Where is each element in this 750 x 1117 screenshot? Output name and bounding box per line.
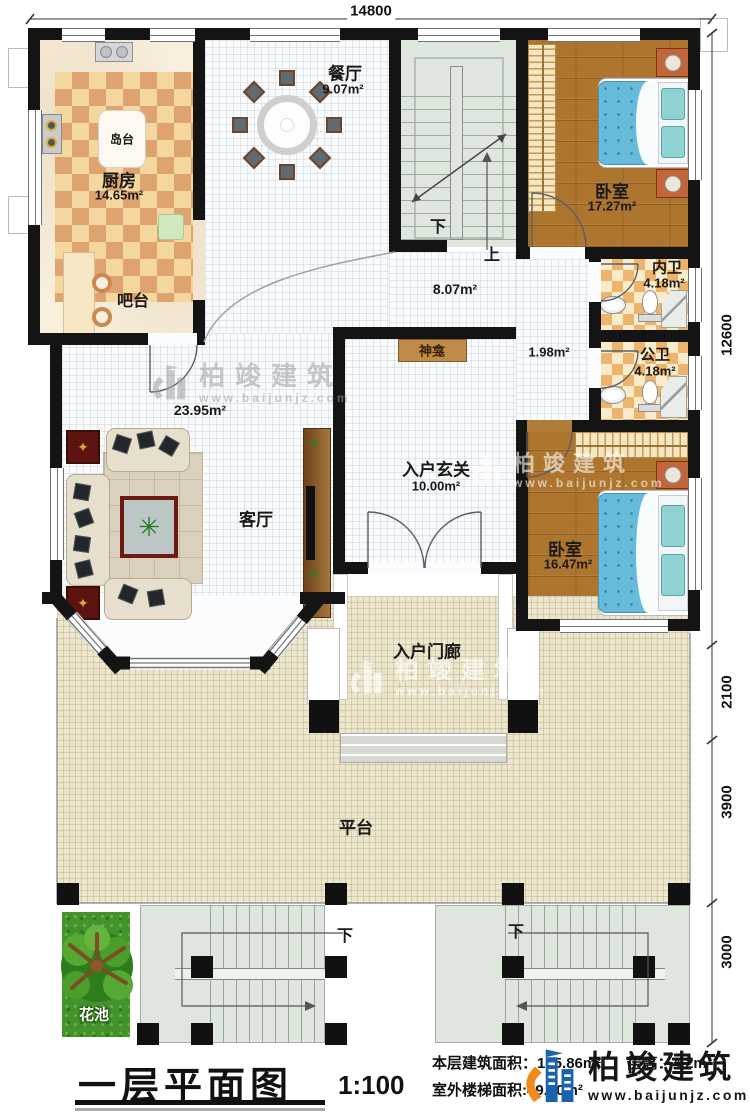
window-right-ensuite	[688, 268, 702, 322]
plan-scale: 1:100	[338, 1070, 405, 1101]
window-right-bedroom1	[688, 90, 702, 180]
dining-table-center	[280, 118, 294, 132]
flowerbed-label: 花池	[79, 1004, 109, 1025]
bedroom2-door-opening	[527, 420, 572, 432]
platform-column	[57, 883, 79, 905]
ensuite-sink	[600, 296, 626, 314]
window-top-1	[62, 28, 105, 42]
room-area-dining: 9.07m²	[322, 82, 363, 97]
window-top-dining	[250, 28, 340, 42]
cabinet-plant: ✳	[305, 566, 323, 584]
room-area-kitchen: 14.65m²	[95, 188, 143, 203]
brand-name: 柏竣建筑	[588, 1051, 749, 1083]
platform-column	[502, 883, 524, 905]
dining-chair	[326, 117, 342, 133]
stove-burner-2	[46, 137, 57, 148]
kitchen-mat	[158, 214, 184, 240]
brand-site: www.baijunjz.com	[588, 1087, 749, 1103]
wall-kitchen-right-upper	[193, 28, 205, 220]
stair-column	[191, 1023, 213, 1045]
bedroom1-nightstand	[656, 169, 690, 198]
dining-chair	[232, 117, 248, 133]
floor-plan: ✦ ✦ ✳ ✳ ✳	[0, 0, 750, 1117]
room-label-foyer: 入户玄关	[402, 456, 470, 481]
area-living: 23.95m²	[174, 402, 226, 418]
room-label-bath: 公卫	[640, 344, 670, 365]
ensuite-toilet-tank	[638, 314, 662, 322]
bedroom1-wardrobe	[528, 44, 556, 212]
stair-down-label: 下	[430, 213, 446, 237]
stair-column	[325, 956, 347, 978]
room-area-ensuite: 4.18m²	[643, 276, 684, 291]
room-label-bar: 吧台	[117, 287, 149, 311]
window-top-bedroom1	[548, 28, 640, 42]
bedroom1-door-opening	[530, 247, 585, 259]
shrine-label: 神龛	[419, 341, 445, 360]
room-label-platform: 平台	[339, 814, 373, 839]
bedroom1-nightstand	[656, 48, 690, 77]
bath-sink	[600, 386, 626, 404]
bath-door-opening	[589, 348, 601, 388]
wall-shrine	[333, 327, 516, 339]
porch-column-base-left	[309, 700, 339, 733]
stair-column	[633, 1023, 655, 1045]
bar-counter	[63, 252, 95, 337]
bedroom2-wardrobe	[575, 432, 688, 458]
title-underline-1	[75, 1100, 325, 1105]
wall-stair-left	[389, 28, 401, 252]
room-label-island: 岛台	[110, 131, 134, 148]
porch-column-base-right	[508, 700, 538, 733]
bedroom2-nightstand	[656, 461, 690, 489]
stair-column	[137, 1023, 159, 1045]
room-label-ensuite: 内卫	[652, 257, 682, 278]
tv-screen	[306, 486, 315, 560]
dim-top: 14800	[347, 3, 395, 20]
dining-chair	[279, 70, 295, 86]
room-label-living: 客厅	[239, 506, 273, 531]
kitchen-sink-bowl-right	[116, 46, 128, 58]
wall-bedroom1-left	[516, 28, 528, 259]
wall-living-bottom-right	[300, 592, 345, 604]
stair-column	[502, 956, 524, 978]
sofa-pillow	[137, 431, 156, 450]
window-left-kitchen	[28, 110, 42, 225]
stair-column	[325, 1023, 347, 1045]
stair-column	[668, 1023, 690, 1045]
brand-logo-icon	[522, 1046, 580, 1108]
platform-column	[325, 883, 347, 905]
exterior-unit-2	[8, 196, 30, 234]
window-top-2	[150, 28, 195, 42]
stair-up-label: 上	[484, 241, 500, 265]
bedroom1-pillow	[661, 88, 685, 120]
cabinet-plant: ✳	[305, 436, 323, 454]
kitchen-sink-bowl-left	[100, 46, 112, 58]
room-area-bedroom2: 16.47m²	[544, 557, 592, 572]
ensuite-toilet-bowl	[642, 290, 658, 314]
room-area-foyer: 10.00m²	[412, 479, 460, 494]
dining-chair	[279, 164, 295, 180]
stove-burner-1	[46, 120, 57, 131]
bath-toilet-tank	[638, 404, 662, 412]
area-corridor: 1.98m²	[528, 345, 569, 360]
entry-door-opening	[368, 562, 481, 574]
stair-column	[633, 956, 655, 978]
room-area-bath: 4.18m²	[634, 364, 675, 379]
side-table: ✦	[66, 586, 100, 620]
ext-stair-down-left: 下	[337, 922, 353, 946]
dim-right-3: 3900	[719, 782, 736, 821]
exterior-unit-1	[8, 48, 30, 88]
ensuite-door-opening	[589, 262, 601, 302]
area-hall: 8.07m²	[433, 281, 477, 297]
window-right-bath	[688, 356, 702, 410]
wall-bedroom2-left	[516, 432, 528, 631]
side-table: ✦	[66, 430, 100, 464]
sofa-pillow	[147, 589, 166, 608]
porch-pier-left	[307, 628, 340, 704]
dim-right-2: 2100	[719, 672, 736, 711]
wall-stair-bottom	[389, 240, 447, 252]
corridor-floor	[516, 259, 589, 420]
porch-pier-right	[507, 628, 540, 704]
window-top-stair	[418, 28, 500, 42]
sofa-pillow	[73, 483, 92, 502]
ext-stair-down-right: 下	[508, 918, 524, 942]
dim-right-4: 3000	[719, 932, 736, 971]
dim-right-1: 12600	[719, 311, 736, 359]
bar-stool	[92, 273, 112, 293]
window-bottom-bedroom2	[560, 619, 668, 633]
window-left-living	[50, 468, 64, 560]
bedroom1-pillow	[661, 126, 685, 158]
wall-bath-mid	[589, 330, 700, 342]
room-area-bedroom1: 17.27m²	[588, 199, 636, 214]
bedroom2-pillow	[661, 505, 685, 547]
sofa-pillow	[73, 535, 91, 553]
window-right-bedroom2	[688, 478, 702, 590]
bath-toilet-bowl	[642, 380, 658, 404]
exterior-unit-3	[700, 18, 728, 52]
bedroom2-pillow	[661, 554, 685, 596]
stair-column	[191, 956, 213, 978]
wall-living-bottom-left	[42, 592, 62, 604]
brand-logo: 柏竣建筑 www.baijunjz.com	[522, 1046, 749, 1108]
porch-steps	[340, 733, 507, 763]
platform-column	[668, 883, 690, 905]
stair-rail	[450, 66, 463, 240]
title-underline-2	[75, 1108, 325, 1111]
bar-stool	[92, 307, 112, 327]
coffee-table: ✳	[120, 496, 178, 558]
room-label-porch: 入户门廊	[393, 638, 461, 663]
bedroom1-sheet	[636, 81, 656, 165]
wall-foyer-left	[333, 339, 345, 574]
bedroom2-sheet	[636, 493, 656, 613]
kitchen-door-opening	[148, 333, 197, 345]
stair-column	[502, 1023, 524, 1045]
